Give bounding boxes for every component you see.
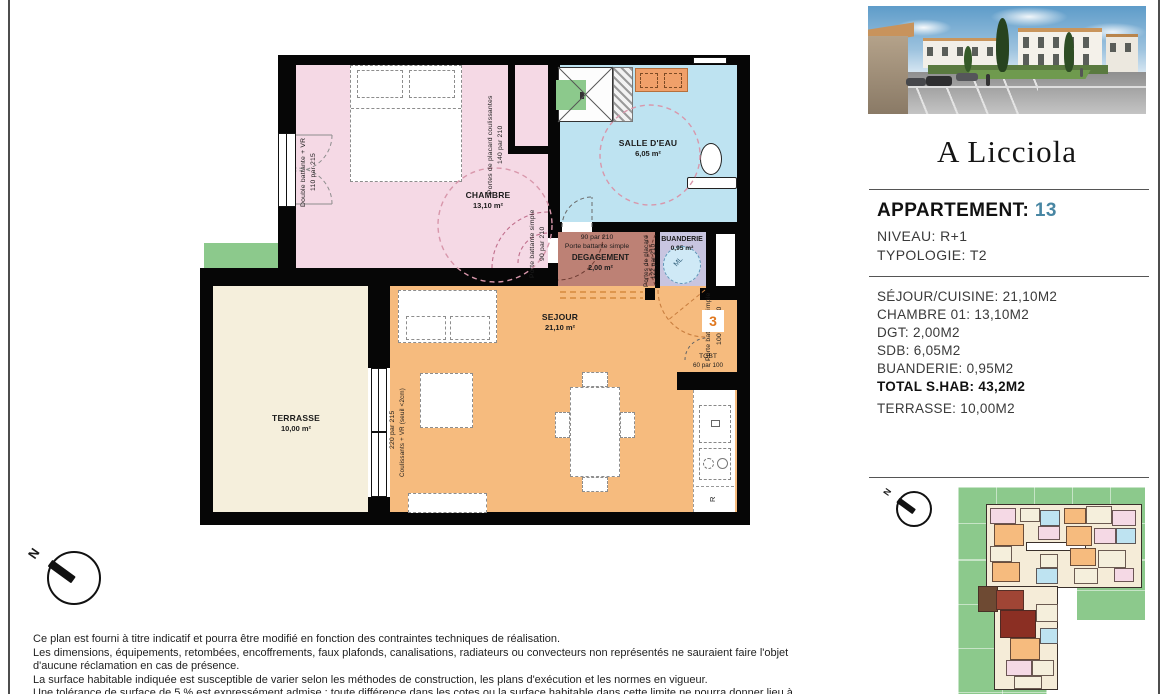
label-porte-sde: 90 par 210 Porte battante simple (548, 234, 646, 252)
site-cell (1112, 510, 1136, 526)
compass-main-n: N (25, 545, 43, 561)
porte-sde-type: Porte battante simple (548, 243, 646, 252)
area-line-total: TOTAL S.HAB: 43,2M2 (877, 378, 1025, 396)
site-cell (1064, 508, 1086, 524)
photo-building-center-windows (927, 47, 997, 56)
photo-person-1 (986, 74, 990, 86)
tgbt-dim: 60 par 100 (678, 362, 738, 370)
site-cell (1040, 554, 1058, 568)
photo-building-far-right (1106, 34, 1138, 72)
site-plan (950, 478, 1155, 694)
plan-annotations-svg (200, 55, 758, 530)
site-cell (1116, 528, 1136, 544)
residence-render-photo (868, 6, 1146, 114)
site-cell (1032, 660, 1054, 676)
panel-divider-2 (869, 276, 1149, 277)
photo-tree-small (964, 46, 972, 72)
site-cell-highlight-upper (996, 590, 1024, 610)
photo-building-far-right-windows (1110, 43, 1134, 52)
label-sejour-name: SEJOUR (510, 312, 610, 323)
label-degagement: DEGAGEMENT 2,00 m² (553, 253, 648, 272)
site-cell (1040, 510, 1060, 526)
area-line-buanderie: BUANDERIE: 0,95M2 (877, 360, 1013, 378)
site-cell-annex (978, 586, 998, 612)
label-sejour: SEJOUR 21,10 m² (510, 312, 610, 332)
label-terrasse: TERRASSE 10,00 m² (246, 413, 346, 433)
vtext-baie-dim: 220 par 215 (389, 400, 396, 460)
compass-site-n: N (881, 486, 893, 497)
site-cell (992, 562, 1020, 582)
label-dgt-name: DEGAGEMENT (553, 253, 648, 263)
apartment-label: APPARTEMENT: (877, 200, 1029, 221)
site-cell (1114, 568, 1134, 582)
site-cell (1074, 568, 1098, 584)
site-cell (1040, 628, 1058, 644)
page-border-left (8, 0, 10, 694)
area-line-terrasse: TERRASSE: 10,00M2 (877, 400, 1015, 418)
plan-sheet: { "panel": { "logo": "A Licciola", "apar… (0, 0, 1170, 694)
site-cell (1036, 604, 1058, 622)
label-buanderie: BUANDERIE 0,95 m² (656, 236, 708, 253)
site-cell (1094, 528, 1116, 544)
label-buanderie-name: BUANDERIE (656, 236, 708, 245)
label-sde-name: SALLE D'EAU (598, 138, 698, 149)
vtext-fenetre-chambre-dim: 110 par 215 (310, 137, 317, 207)
area-line-sdb: SDB: 6,05M2 (877, 342, 961, 360)
site-cell (1098, 550, 1126, 568)
apartment-number: 13 (1035, 200, 1057, 221)
vtext-placard-chambre: Portes de placard coulissantes (487, 70, 494, 220)
area-line-dgt: DGT: 2,00M2 (877, 324, 960, 342)
vtext-porte-chambre: Porte battante simple (529, 198, 536, 290)
photo-grass-strip (965, 70, 1090, 79)
site-cell (1036, 568, 1058, 584)
site-cell (990, 546, 1012, 562)
vtext-baie: Coulissants + VR (seuil <2cm) (399, 377, 406, 487)
label-terrasse-area: 10,00 m² (246, 424, 346, 433)
page-border-right (1158, 0, 1160, 694)
photo-cypress-tall (996, 18, 1009, 72)
label-sejour-area: 21,10 m² (510, 323, 610, 332)
apartment-heading: APPARTEMENT: 13 (877, 200, 1057, 222)
photo-building-right-windows-upper (1023, 37, 1097, 48)
porte-sde-dim: 90 par 210 (548, 234, 646, 243)
photo-cypress-right (1064, 32, 1074, 72)
site-cell (1014, 676, 1042, 689)
panel-divider-1 (869, 189, 1149, 190)
site-cell (1066, 526, 1092, 546)
site-cell (1086, 506, 1112, 524)
brand-logo: A Licciola (868, 134, 1146, 170)
site-cell (1006, 660, 1032, 676)
vtext-fenetre-chambre: Double battante + VR (300, 128, 307, 216)
photo-car-2 (956, 73, 978, 81)
vtext-placard-chambre-dim: 140 par 210 (497, 95, 504, 195)
area-line-sejour: SÉJOUR/CUISINE: 21,10M2 (877, 288, 1057, 306)
site-cell (1010, 638, 1040, 660)
site-cell-highlight (1000, 610, 1036, 638)
site-cell (994, 524, 1024, 546)
photo-building-center (923, 38, 1001, 68)
floor-plan: R CHAMBRE 13,10 m² SALLE D'EAU 6,05 m² 9… (200, 55, 758, 530)
site-cell (1020, 508, 1040, 522)
label-terrasse-name: TERRASSE (246, 413, 346, 424)
photo-person-2 (1080, 68, 1083, 77)
site-cell (990, 508, 1016, 524)
photo-building-right (1018, 28, 1102, 69)
photo-car-3 (906, 78, 926, 86)
disclaimer-text: Ce plan est fourni à titre indicatif et … (33, 633, 833, 694)
label-dgt-area: 2,00 m² (553, 263, 648, 272)
label-sde-area: 6,05 m² (598, 149, 698, 158)
vtext-placard-dgt: Portes de placard (643, 234, 650, 288)
vtext-placard-dgt-dim: 122 par 210 (650, 236, 657, 286)
site-cell (1070, 548, 1096, 566)
photo-car-1 (926, 76, 952, 86)
vtext-porte-chambre-dim: 90 par 210 (539, 213, 546, 275)
niveau-line: NIVEAU: R+1 (877, 228, 967, 244)
entrance-number-badge: 3 (702, 310, 724, 332)
photo-parking-line-long (868, 86, 1146, 88)
area-line-chambre: CHAMBRE 01: 13,10M2 (877, 306, 1029, 324)
typologie-line: TYPOLOGIE: T2 (877, 247, 987, 263)
label-salle-deau: SALLE D'EAU 6,05 m² (598, 138, 698, 158)
photo-left-building (868, 36, 908, 114)
site-cell (1038, 526, 1060, 540)
